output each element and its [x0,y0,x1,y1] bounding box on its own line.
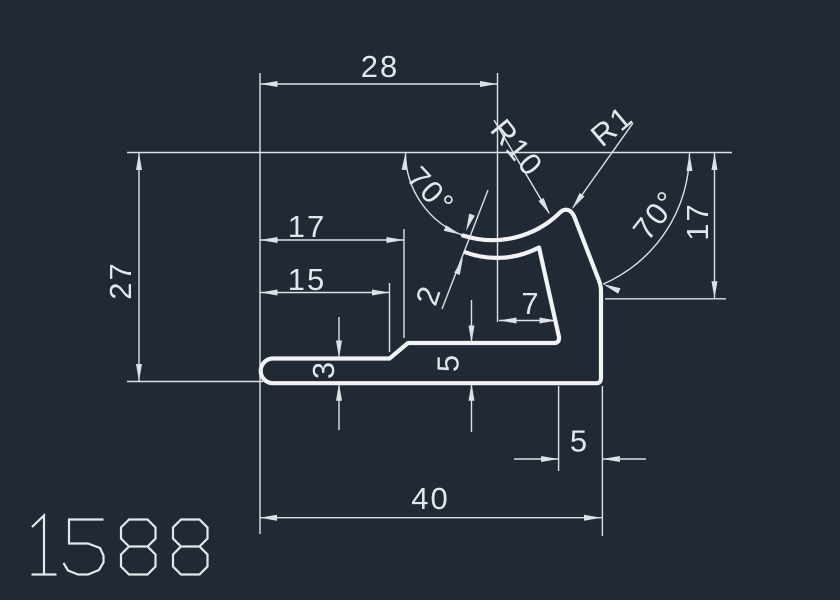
svg-text:5: 5 [431,353,466,372]
svg-text:7: 7 [521,286,540,321]
svg-text:40: 40 [411,481,449,516]
svg-text:5: 5 [570,424,589,459]
svg-text:28: 28 [361,49,399,84]
svg-text:17: 17 [680,202,715,240]
svg-text:27: 27 [103,261,138,299]
svg-text:3: 3 [306,360,341,379]
svg-text:15: 15 [288,262,326,297]
svg-text:17: 17 [288,209,326,244]
